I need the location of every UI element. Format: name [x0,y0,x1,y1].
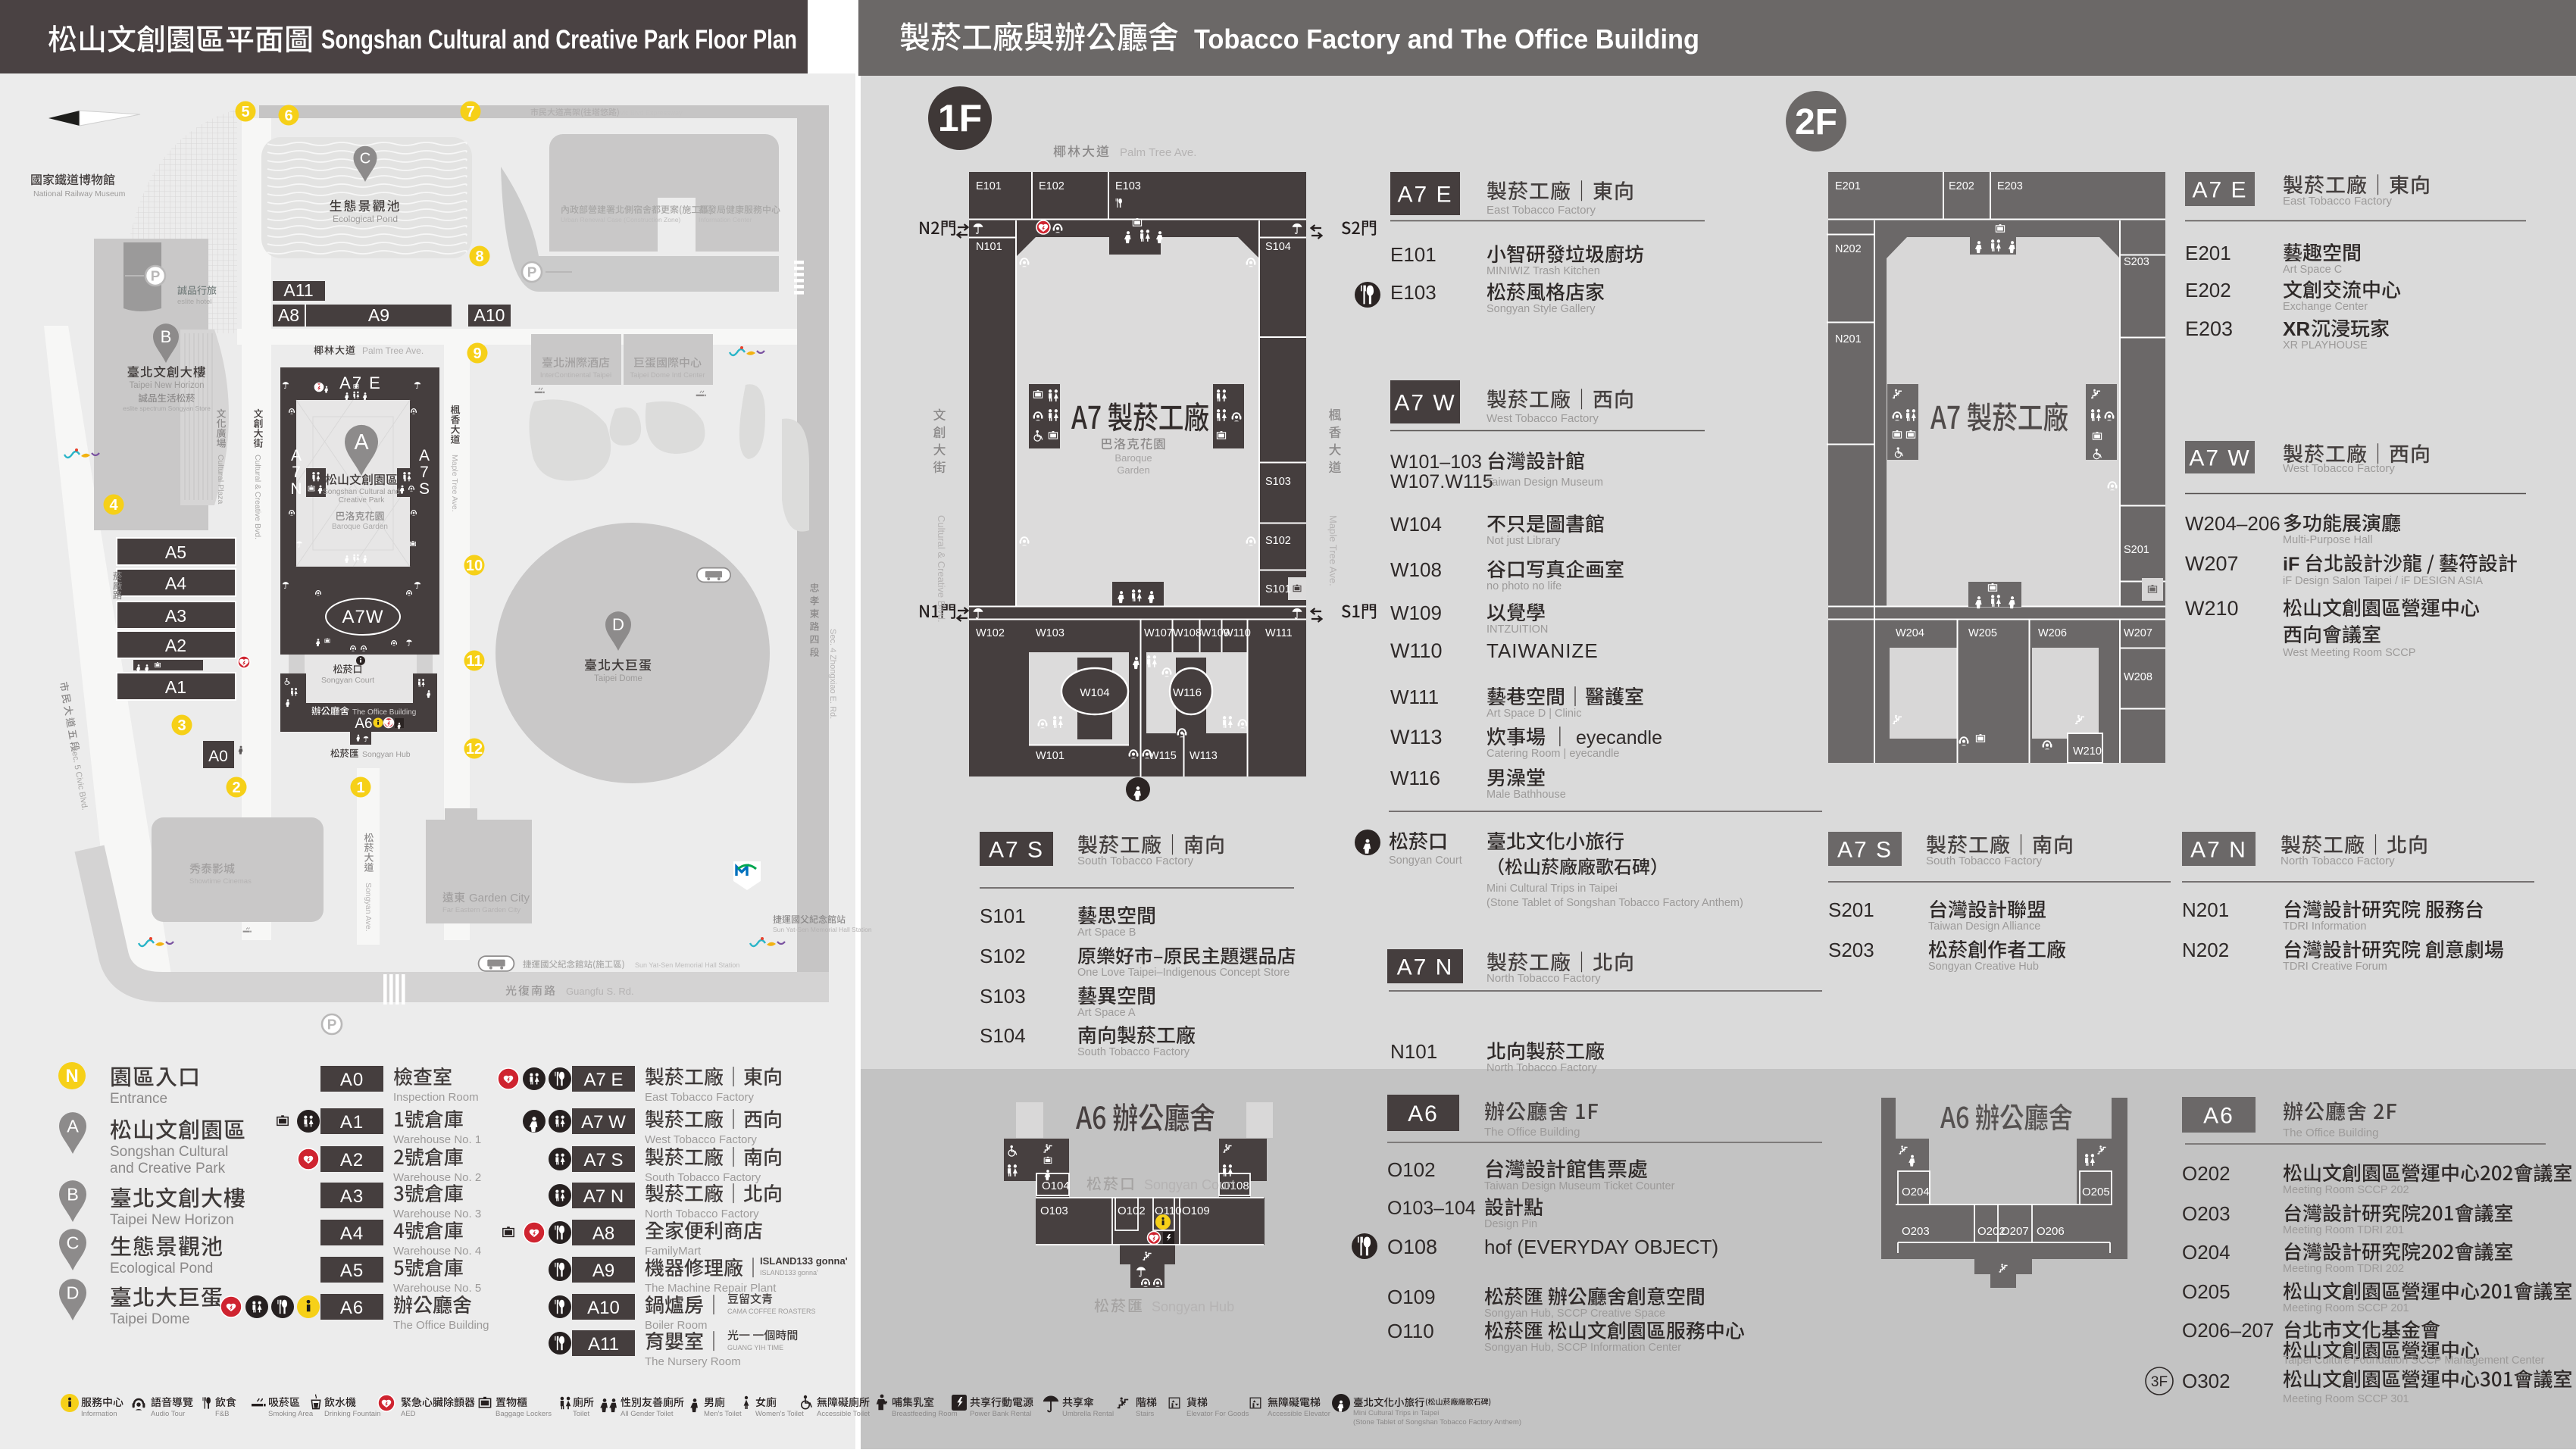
svg-text:W204–206: W204–206 [2185,512,2281,535]
svg-text:A: A [419,447,430,464]
svg-text:Songyan Creative Hub: Songyan Creative Hub [1928,961,2039,973]
svg-text:A9: A9 [368,305,389,325]
svg-text:O102: O102 [1118,1205,1146,1217]
svg-text:W205: W205 [1968,627,1997,639]
svg-text:North Tobacco Factory: North Tobacco Factory [1487,972,1601,985]
svg-text:W108: W108 [1390,558,1442,581]
svg-text:B: B [67,1184,79,1204]
svg-text:FamilyMart: FamilyMart [645,1245,702,1258]
svg-text:O108: O108 [1387,1236,1437,1258]
svg-text:Songyan Ave.: Songyan Ave. [364,883,373,932]
svg-text:Creative Park: Creative Park [339,496,386,505]
svg-text:CAMA COFFEE ROASTERS: CAMA COFFEE ROASTERS [727,1308,816,1315]
svg-text:E103: E103 [1115,180,1141,192]
svg-text:Warehouse No. 4: Warehouse No. 4 [393,1245,481,1258]
svg-text:Garden: Garden [1117,464,1149,476]
svg-text:West Tobacco Factory: West Tobacco Factory [1487,412,1599,425]
svg-text:O203: O203 [2182,1202,2231,1225]
svg-text:A11: A11 [283,280,313,300]
svg-text:TDRI Information: TDRI Information [2283,920,2366,933]
svg-text:A8: A8 [278,305,299,325]
svg-text:S201: S201 [1828,898,1874,921]
svg-text:Art Space B: Art Space B [1077,926,1136,939]
svg-text:hof (EVERYDAY OBJECT): hof (EVERYDAY OBJECT) [1484,1236,1718,1258]
svg-text:A0: A0 [340,1070,364,1090]
svg-text:7: 7 [466,104,474,120]
svg-text:9: 9 [473,345,481,362]
svg-text:A7 E: A7 E [2192,178,2247,203]
svg-text:F&B: F&B [215,1410,229,1418]
svg-text:The Nursery Room: The Nursery Room [645,1355,741,1368]
svg-text:N202: N202 [2182,939,2229,961]
svg-text:iF Design Salon Taipei / iF DE: iF Design Salon Taipei / iF DESIGN ASIA [2283,575,2483,587]
svg-text:5: 5 [241,104,249,120]
svg-text:East Tobacco Factory: East Tobacco Factory [645,1091,754,1104]
svg-text:Design Pin: Design Pin [1484,1218,1537,1230]
svg-text:Elevator For Goods: Elevator For Goods [1186,1410,1249,1418]
svg-text:W207: W207 [2124,627,2152,639]
svg-text:The Machine Repair Plant: The Machine Repair Plant [645,1282,777,1295]
svg-text:A0: A0 [208,748,228,765]
svg-text:W204: W204 [1896,627,1924,639]
svg-text:Meeting Room SCCP 201: Meeting Room SCCP 201 [2283,1302,2409,1314]
svg-text:O103–104: O103–104 [1387,1198,1476,1219]
svg-text:Male Bathhouse: Male Bathhouse [1487,789,1566,801]
svg-text:Taipei New Horizon: Taipei New Horizon [129,381,204,390]
svg-text:N202: N202 [1835,243,1862,255]
svg-text:A7 E: A7 E [339,373,382,392]
svg-text:Meeting Room TDRI 201: Meeting Room TDRI 201 [2283,1224,2404,1236]
svg-text:1: 1 [356,780,364,796]
svg-text:O103: O103 [1040,1205,1068,1217]
svg-text:Garden City: Garden City [469,892,530,905]
svg-text:S203: S203 [2124,256,2149,268]
svg-text:8: 8 [475,248,483,265]
svg-text:Taipei New Horizon: Taipei New Horizon [110,1212,234,1228]
svg-text:Art Space A: Art Space A [1077,1007,1136,1019]
svg-text:Ecological Pond: Ecological Pond [110,1261,213,1276]
svg-text:W111: W111 [1265,627,1293,639]
svg-text:W108: W108 [1173,627,1202,639]
svg-text:Exchange Center: Exchange Center [2283,301,2368,313]
svg-text:National Railway Museum: National Railway Museum [33,189,126,198]
svg-text:S104: S104 [1265,241,1291,253]
svg-text:1F: 1F [938,97,982,139]
svg-text:W113: W113 [1190,750,1218,762]
svg-text:W110: W110 [1390,639,1443,662]
svg-text:A9: A9 [592,1261,614,1281]
svg-text:Art Space C: Art Space C [2283,264,2342,276]
svg-text:Palm Tree Ave.: Palm Tree Ave. [1120,146,1196,159]
svg-text:A1: A1 [165,677,186,697]
svg-text:W101–103: W101–103 [1390,452,1482,473]
svg-text:iF: iF [2283,554,2299,575]
svg-text:E102: E102 [1039,180,1064,192]
svg-text:Sec. 4 Zhongxiao E. Rd.: Sec. 4 Zhongxiao E. Rd. [828,629,837,719]
svg-text:Taipei Dome: Taipei Dome [594,674,642,683]
svg-text:East Tobacco Factory: East Tobacco Factory [1487,204,1596,217]
svg-text:Warehouse No. 5: Warehouse No. 5 [393,1282,481,1295]
svg-text:A10: A10 [474,305,505,325]
svg-text:S203: S203 [1828,939,1874,961]
svg-text:South Tobacco Factory: South Tobacco Factory [1926,855,2043,867]
svg-text:Power Bank Rental: Power Bank Rental [970,1410,1031,1418]
svg-text:Songyan Hub: Songyan Hub [1152,1299,1234,1314]
svg-text:W104: W104 [1080,686,1109,699]
svg-text:A7 W: A7 W [1394,391,1455,416]
svg-text:A7 S: A7 S [1837,838,1893,863]
svg-text:12: 12 [466,741,483,758]
svg-text:S: S [419,480,430,498]
svg-text:Songshan Cultural and Creative: Songshan Cultural and Creative Park Floo… [321,25,797,55]
svg-text:O204: O204 [1902,1186,1930,1198]
svg-text:North Tobacco Factory: North Tobacco Factory [1487,1062,1597,1074]
svg-text:W102: W102 [976,627,1005,639]
svg-text:N: N [65,1066,78,1086]
svg-text:A11: A11 [588,1334,619,1355]
svg-text:C: C [67,1233,80,1252]
svg-text:Smoking Area: Smoking Area [268,1410,314,1418]
svg-text:E203: E203 [1997,180,2023,192]
svg-text:Taipei Dome: Taipei Dome [110,1311,190,1327]
svg-text:Far Eastern Garden City: Far Eastern Garden City [442,906,521,914]
svg-text:Women's Toilet: Women's Toilet [755,1410,804,1418]
svg-text:W104: W104 [1390,513,1442,536]
svg-text:W116: W116 [1390,767,1440,789]
svg-text:One Love Taipei–Indigenous Con: One Love Taipei–Indigenous Concept Store [1077,967,1290,979]
svg-text:TDRI Creative Forum: TDRI Creative Forum [2283,961,2387,973]
svg-text:A7 E: A7 E [1397,183,1452,208]
svg-text:Songyan Hub, SCCP Information: Songyan Hub, SCCP Information Center [1484,1342,1681,1354]
svg-text:Baggage Lockers: Baggage Lockers [496,1410,552,1418]
svg-text:eslite spectrum Songyan Store: eslite spectrum Songyan Store [123,405,211,412]
svg-text:Songshan Cultural and: Songshan Cultural and [323,488,400,496]
svg-text:Ecological Pond: Ecological Pond [333,214,398,224]
svg-text:W101: W101 [1036,750,1064,762]
svg-text:B: B [161,327,172,346]
svg-text:W207: W207 [2185,552,2239,575]
svg-text:The Office Building: The Office Building [2283,1126,2378,1139]
svg-text:Inspection Room: Inspection Room [393,1091,479,1104]
svg-text:and Creative Park: and Creative Park [110,1161,226,1176]
svg-text:no photo no life: no photo no life [1487,580,1562,592]
svg-text:A4: A4 [165,573,186,593]
svg-text:E201: E201 [1835,180,1861,192]
svg-text:ISLAND133 gonna': ISLAND133 gonna' [760,1269,818,1276]
svg-text:D: D [67,1283,80,1302]
svg-text:W210: W210 [2073,745,2102,758]
svg-text:A1: A1 [340,1112,364,1133]
svg-text:4: 4 [109,497,118,514]
svg-text:O204: O204 [2182,1241,2231,1264]
svg-text:Maple Tree Ave.: Maple Tree Ave. [1327,515,1339,586]
svg-text:MINIWIZ Trash Kitchen: MINIWIZ Trash Kitchen [1487,265,1600,277]
svg-text:Palm Tree Ave.: Palm Tree Ave. [362,345,424,356]
svg-text:Accessible Elevator: Accessible Elevator [1268,1410,1330,1418]
svg-text:A6: A6 [355,716,372,732]
svg-text:O102: O102 [1387,1158,1436,1181]
svg-text:6: 6 [284,108,292,124]
svg-text:Accessible Toilet: Accessible Toilet [817,1410,870,1418]
svg-text:West Tobacco Factory: West Tobacco Factory [2283,462,2395,475]
svg-text:XR PLAYHOUSE: XR PLAYHOUSE [2283,339,2368,352]
svg-text:West Meeting Room SCCP: West Meeting Room SCCP [2283,647,2415,659]
svg-text:O205: O205 [2182,1280,2231,1303]
svg-text:E202: E202 [2185,279,2231,302]
svg-text:S201: S201 [2124,544,2149,556]
svg-text:A7 N: A7 N [583,1186,624,1207]
svg-text:Civic Blvd Expressway: Civic Blvd Expressway [614,109,683,117]
svg-text:GUANG YIH TIME: GUANG YIH TIME [727,1344,783,1351]
svg-text:XR: XR [2283,317,2310,340]
svg-text:E201: E201 [2185,242,2231,264]
svg-text:TAIWANIZE: TAIWANIZE [1487,639,1599,662]
svg-text:3: 3 [177,717,186,734]
svg-text:A3: A3 [340,1186,364,1207]
svg-text:Cultural & Creative Bvd.: Cultural & Creative Bvd. [253,455,262,539]
svg-text:A8: A8 [592,1223,614,1244]
svg-text:Meeting Room SCCP 301: Meeting Room SCCP 301 [2283,1393,2409,1405]
svg-text:Entrance: Entrance [110,1091,167,1107]
svg-text:E101: E101 [1390,243,1436,266]
svg-text:Urban Renewal Case (Constructi: Urban Renewal Case (Construction Zone) [561,216,680,223]
svg-text:E103: E103 [1390,281,1436,304]
svg-text:10: 10 [466,558,483,574]
svg-text:2: 2 [232,780,240,796]
svg-text:Showtime Cinemas: Showtime Cinemas [189,877,252,886]
svg-text:W206: W206 [2038,627,2067,639]
svg-text:C: C [360,150,371,167]
svg-text:Warehouse No. 3: Warehouse No. 3 [393,1208,481,1220]
svg-text:Catering Room | eyecandle: Catering Room | eyecandle [1487,748,1619,760]
svg-text:D: D [612,615,624,634]
svg-text:A2: A2 [340,1150,364,1170]
svg-text:3F: 3F [2151,1374,2168,1390]
svg-text:A6: A6 [1408,1101,1439,1126]
svg-text:Songshan Cultural: Songshan Cultural [110,1144,228,1160]
svg-text:Information: Information [81,1410,117,1418]
svg-text:A5: A5 [165,542,186,562]
svg-text:S101: S101 [1265,583,1291,595]
svg-text:InterContinental Taipei: InterContinental Taipei [540,371,611,380]
svg-text:N101: N101 [1390,1040,1437,1063]
svg-text:W107: W107 [1144,627,1173,639]
svg-text:S101: S101 [980,905,1026,927]
svg-text:Baroque Garden: Baroque Garden [332,523,388,531]
svg-text:Taipei Culture Foundation SCCP: Taipei Culture Foundation SCCP Managemen… [2283,1355,2545,1367]
svg-text:A: A [67,1116,79,1136]
svg-text:W103: W103 [1036,627,1064,639]
svg-text:N201: N201 [1835,333,1862,345]
svg-text:P: P [527,264,537,280]
svg-text:W107.W115: W107.W115 [1390,471,1493,492]
svg-text:Songyan Style Gallery: Songyan Style Gallery [1487,303,1596,315]
svg-text:A2: A2 [165,636,186,655]
svg-text:E101: E101 [976,180,1002,192]
svg-text:A7 W: A7 W [2189,446,2250,471]
svg-text:W210: W210 [2185,597,2239,620]
svg-text:AED: AED [401,1410,416,1418]
svg-text:N101: N101 [976,241,1002,253]
svg-text:A10: A10 [587,1298,620,1318]
svg-text:North Tobacco Factory: North Tobacco Factory [2281,855,2395,867]
svg-text:A7 N: A7 N [1397,955,1454,980]
svg-text:Taiwan Design Alliance: Taiwan Design Alliance [1928,920,2040,933]
svg-text:The Office Building: The Office Building [393,1319,489,1332]
svg-text:A6: A6 [340,1298,364,1318]
svg-text:O206: O206 [2037,1225,2065,1238]
svg-text:A6: A6 [2203,1104,2234,1129]
svg-text:Warehouse No. 1: Warehouse No. 1 [393,1133,481,1146]
svg-text:Sun Yat-Sen Memorial Hall Stat: Sun Yat-Sen Memorial Hall Station [773,926,872,933]
svg-text:7: 7 [420,464,429,481]
svg-text:South Tobacco Factory: South Tobacco Factory [1077,1046,1190,1058]
svg-text:A: A [291,447,302,464]
svg-text:Audio Tour: Audio Tour [151,1410,185,1418]
svg-text:S102: S102 [1265,535,1291,547]
svg-text:eyecandle: eyecandle [1576,727,1662,748]
svg-text:2F: 2F [1795,102,1837,142]
svg-text:W115: W115 [1149,750,1177,762]
svg-text:O109: O109 [1387,1286,1436,1308]
svg-text:South Tobacco Factory: South Tobacco Factory [645,1171,761,1184]
svg-text:A7 S: A7 S [989,838,1044,863]
svg-text:Stairs: Stairs [1136,1410,1155,1418]
svg-text:W116: W116 [1173,686,1202,699]
svg-text:INTZUITION: INTZUITION [1487,623,1548,636]
svg-text:P: P [327,1017,337,1033]
svg-text:Multi-Purpose Hall: Multi-Purpose Hall [2283,534,2372,546]
svg-text:Sun Yat-Sen Memorial Hall Stat: Sun Yat-Sen Memorial Hall Station [635,961,739,969]
svg-text:W109: W109 [1390,602,1442,624]
svg-text:O110: O110 [1155,1205,1182,1217]
svg-text:S104: S104 [980,1024,1026,1047]
svg-text:O203: O203 [1902,1225,1930,1238]
svg-text:Songyan Court: Songyan Court [1144,1177,1235,1192]
svg-text:A: A [354,430,369,455]
svg-text:Songyan Hub: Songyan Hub [362,750,411,759]
svg-text:A7 N: A7 N [2190,838,2247,863]
svg-text:Breastfeeding Room: Breastfeeding Room [892,1410,958,1418]
svg-text:A7 E: A7 E [583,1070,623,1090]
svg-text:O202: O202 [2182,1162,2231,1185]
svg-text:Cultural & Creative Blvd.: Cultural & Creative Blvd. [936,515,947,623]
svg-text:E203: E203 [2185,317,2233,340]
svg-text:North Tobacco Factory: North Tobacco Factory [645,1208,759,1220]
svg-text:Art Space D | Clinic: Art Space D | Clinic [1487,708,1581,720]
svg-text:Baroque: Baroque [1114,452,1152,464]
svg-text:Guangfu S. Rd.: Guangfu S. Rd. [566,986,634,997]
svg-text:(Stone Tablet of Songshan Toba: (Stone Tablet of Songshan Tobacco Factor… [1487,897,1743,909]
svg-text:E202: E202 [1949,180,1974,192]
svg-text:Tobacco Factory and The Office: Tobacco Factory and The Office Building [1194,23,1699,55]
svg-text:ISLAND133 gonna': ISLAND133 gonna' [760,1255,848,1267]
svg-text:S102: S102 [980,945,1026,967]
svg-text:Men's Toilet: Men's Toilet [704,1410,742,1418]
svg-text:Warehouse No. 2: Warehouse No. 2 [393,1171,481,1184]
svg-text:O207: O207 [2001,1225,2029,1238]
svg-text:Toilet: Toilet [573,1410,590,1418]
svg-text:S103: S103 [980,985,1026,1008]
svg-text:Songyan Hub, SCCP Creative Spa: Songyan Hub, SCCP Creative Space [1484,1308,1665,1320]
svg-text:Not just Library: Not just Library [1487,535,1561,547]
svg-text:W113: W113 [1390,726,1443,748]
svg-text:Cultural Plaza: Cultural Plaza [216,455,225,505]
svg-text:eslite hotel: eslite hotel [177,298,211,306]
svg-text:Taipei Dome Intl Center: Taipei Dome Intl Center [630,371,705,380]
svg-text:South Tobacco Factory: South Tobacco Factory [1077,855,1194,867]
svg-text:Boiler Room: Boiler Room [645,1319,708,1332]
svg-text:P: P [151,268,161,284]
svg-text:Meeting Room SCCP 202: Meeting Room SCCP 202 [2283,1184,2409,1196]
svg-text:O110: O110 [1387,1320,1434,1342]
svg-text:N201: N201 [2182,898,2229,921]
svg-text:Taiwan Design Museum Ticket Co: Taiwan Design Museum Ticket Counter [1484,1180,1675,1192]
svg-text:All Gender Toilet: All Gender Toilet [621,1410,674,1418]
svg-text:West Tobacco Factory: West Tobacco Factory [645,1133,757,1146]
svg-text:W111: W111 [1390,686,1439,708]
svg-text:7: 7 [292,464,301,481]
svg-text:S103: S103 [1265,476,1291,488]
svg-text:W110: W110 [1223,627,1251,639]
svg-text:O104: O104 [1042,1180,1070,1192]
svg-text:Songyan Court: Songyan Court [321,676,374,685]
svg-text:A3: A3 [165,606,186,626]
svg-text:O206–207: O206–207 [2182,1319,2274,1342]
svg-text:Umbrella Rental: Umbrella Rental [1062,1410,1114,1418]
svg-text:Drinking Fountain: Drinking Fountain [324,1410,380,1418]
svg-text:The Office Building: The Office Building [1484,1126,1580,1139]
svg-text:Meeting Room TDRI 202: Meeting Room TDRI 202 [2283,1263,2404,1275]
svg-text:11: 11 [466,653,482,670]
svg-text:A7 W: A7 W [581,1112,626,1133]
svg-text:East Tobacco Factory: East Tobacco Factory [2283,195,2392,208]
svg-text:A7 S: A7 S [583,1150,623,1170]
svg-text:Taiwan Design Museum: Taiwan Design Museum [1487,477,1603,489]
svg-text:N: N [290,480,302,498]
svg-text:Mini Cultural Trips in Taipei: Mini Cultural Trips in Taipei [1487,883,1618,895]
svg-text:A4: A4 [340,1223,364,1244]
svg-text:Songyan Court: Songyan Court [1389,855,1462,867]
svg-text:A5: A5 [340,1261,364,1281]
svg-text:(Stone Tablet of Songshan Toba: (Stone Tablet of Songshan Tobacco Factor… [1353,1418,1521,1426]
svg-text:W208: W208 [2124,671,2152,683]
svg-text:O205: O205 [2082,1186,2110,1198]
svg-text:Information Center: Information Center [699,216,752,223]
svg-text:O109: O109 [1182,1205,1210,1217]
svg-text:Mini Cultural Trips in Taipei: Mini Cultural Trips in Taipei [1353,1409,1439,1417]
svg-text:A7W: A7W [342,607,383,627]
svg-text:Maple Tree Ave.: Maple Tree Ave. [450,455,459,512]
svg-text:O302: O302 [2182,1370,2231,1392]
